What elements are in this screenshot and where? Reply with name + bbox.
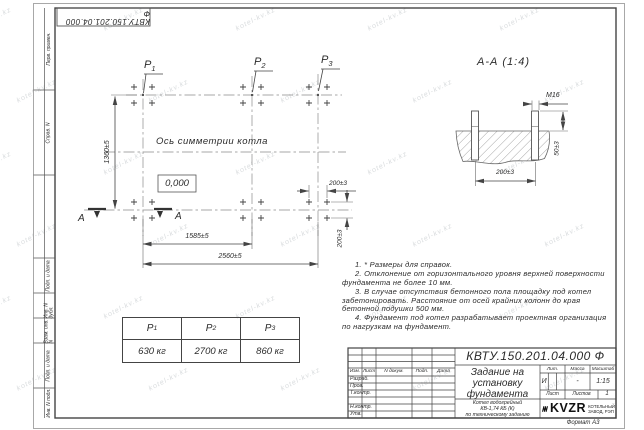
- h1-base: P: [147, 323, 154, 334]
- lit-header: Лит.: [540, 367, 565, 372]
- top-stamp-box: КВТУ.150.201.04.000 Ф: [57, 8, 150, 26]
- note-3: 3. В случае отсутствия бетонного пола пл…: [342, 288, 614, 313]
- load-point-label-p3: P3: [321, 55, 333, 68]
- rev-header-data: Дата: [432, 369, 455, 374]
- rev-header-izm: Изм.: [348, 369, 362, 374]
- dim-bolt-spacing-x: 200±3: [329, 181, 347, 188]
- section-view-title: А-А (1:4): [477, 57, 530, 69]
- mass-header: Масса: [565, 367, 590, 372]
- dim-bolt-spacing-y: 200±3: [337, 222, 346, 256]
- frame-label-sprav-n: Справ. N: [45, 90, 55, 175]
- row-label-utv: Утв.: [350, 412, 362, 417]
- sheet-label: Лист: [540, 392, 565, 397]
- kvzr-spring-icon: [542, 402, 548, 416]
- row-label-razrab: Разраб.: [350, 377, 369, 382]
- top-stamp-text: КВТУ.150.201.04.000 Ф: [57, 8, 150, 26]
- doc-number: КВТУ.150.201.04.000 Ф: [456, 349, 615, 364]
- dim-section-spacing-200: 200±3: [480, 170, 530, 177]
- h3-sub: 3: [271, 325, 275, 332]
- load-table-value-p1: 630 кг: [123, 340, 182, 362]
- drawing-sheet: kotel-kv.kzkotel-kv.kzkotel-kv.kzkotel-k…: [0, 0, 644, 430]
- load-table-value-p3: 860 кг: [241, 340, 299, 362]
- anchor-bolt-right: [532, 111, 539, 160]
- h1-sub: 1: [153, 325, 157, 332]
- notes-block: 1. * Размеры для справок. 2. Отклонение …: [342, 261, 614, 332]
- section-letter-right: А: [175, 212, 182, 223]
- dim-protrusion-50: 50±3: [554, 134, 563, 164]
- company-line-2: ЗАВОД, РЭП: [588, 409, 615, 414]
- rev-header-ndokum: N докум.: [376, 369, 412, 374]
- sheets-label: Листов: [565, 392, 598, 397]
- frame-label-podp-data-2: Подп. и дата: [45, 343, 55, 388]
- kvzr-logo-text: KVZR: [550, 402, 586, 415]
- load-point-label-p2: P2: [254, 57, 266, 70]
- product-name: Котел водогрейный КВ-1,74 КБ (К) по техн…: [455, 400, 540, 418]
- load-table-header-p1: P1: [123, 318, 182, 340]
- dim-span-2560: 2560±5: [200, 253, 260, 260]
- load-point-label-p1: P1: [144, 60, 156, 73]
- load-table: P1 P2 P3 630 кг 2700 кг 860 кг: [122, 317, 300, 363]
- p1-sub: 1: [151, 64, 155, 73]
- frame-label-podp-data-1: Подп. и дата: [45, 258, 55, 293]
- sheets-value: 1: [598, 391, 616, 397]
- company-line-1: КОТЕЛЬНЫЙ: [588, 404, 615, 409]
- h2-sub: 2: [212, 325, 216, 332]
- section-letter-left: А: [78, 214, 85, 225]
- row-label-nkontr: Н.контр.: [350, 405, 372, 410]
- product-line-3: по техническому заданию: [455, 412, 540, 418]
- load-table-value-p2: 2700 кг: [182, 340, 241, 362]
- scale-header: Масштаб: [590, 367, 616, 372]
- format-label: Формат А3: [548, 420, 618, 426]
- scale-value: 1:15: [590, 376, 616, 388]
- frame-label-vzam-inv: Взам. инв. N: [45, 318, 55, 343]
- company-name: КОТЕЛЬНЫЙ ЗАВОД, РЭП: [588, 404, 615, 414]
- lit-value: И: [540, 376, 548, 388]
- row-label-prov: Пров.: [350, 384, 364, 389]
- p2-sub: 2: [261, 61, 265, 70]
- dim-height-1360: 1360±5: [103, 127, 113, 177]
- h3-base: P: [265, 323, 272, 334]
- frame-label-inv-dubl: Инв. N дубл.: [45, 293, 55, 318]
- rev-header-list: Лист: [362, 369, 376, 374]
- drawing-title: Задание на установку фундамента: [455, 367, 540, 400]
- drawing-title-line-2: установку: [455, 378, 540, 389]
- elevation-mark: 0,000: [158, 175, 196, 192]
- note-2: 2. Отклонение от горизонтального уровня …: [342, 270, 614, 287]
- drawing-title-line-1: Задание на: [455, 367, 540, 378]
- anchor-bolt-left: [472, 111, 479, 160]
- dim-span-1585: 1585±5: [167, 233, 227, 240]
- frame-label-inv-podl: Инв. N подл.: [45, 388, 55, 418]
- rev-header-podp: Подп.: [412, 369, 432, 374]
- mass-value: -: [565, 376, 590, 388]
- row-label-tkontr: Т.контр.: [350, 391, 371, 396]
- frame-label-perv-primen: Перв. примен.: [45, 8, 55, 90]
- p3-sub: 3: [328, 59, 332, 68]
- drawing-title-line-3: фундамента: [455, 389, 540, 400]
- boiler-symmetry-axis-label: Ось симметрии котла: [156, 137, 268, 147]
- load-table-header-p2: P2: [182, 318, 241, 340]
- load-table-header-p3: P3: [241, 318, 299, 340]
- company-logo: KVZR КОТЕЛЬНЫЙ ЗАВОД, РЭП: [542, 401, 615, 417]
- note-1: 1. * Размеры для справок.: [342, 261, 614, 269]
- dim-thread-m16: М16: [546, 92, 560, 99]
- note-4: 4. Фундамент под котел разрабатывает про…: [342, 314, 614, 331]
